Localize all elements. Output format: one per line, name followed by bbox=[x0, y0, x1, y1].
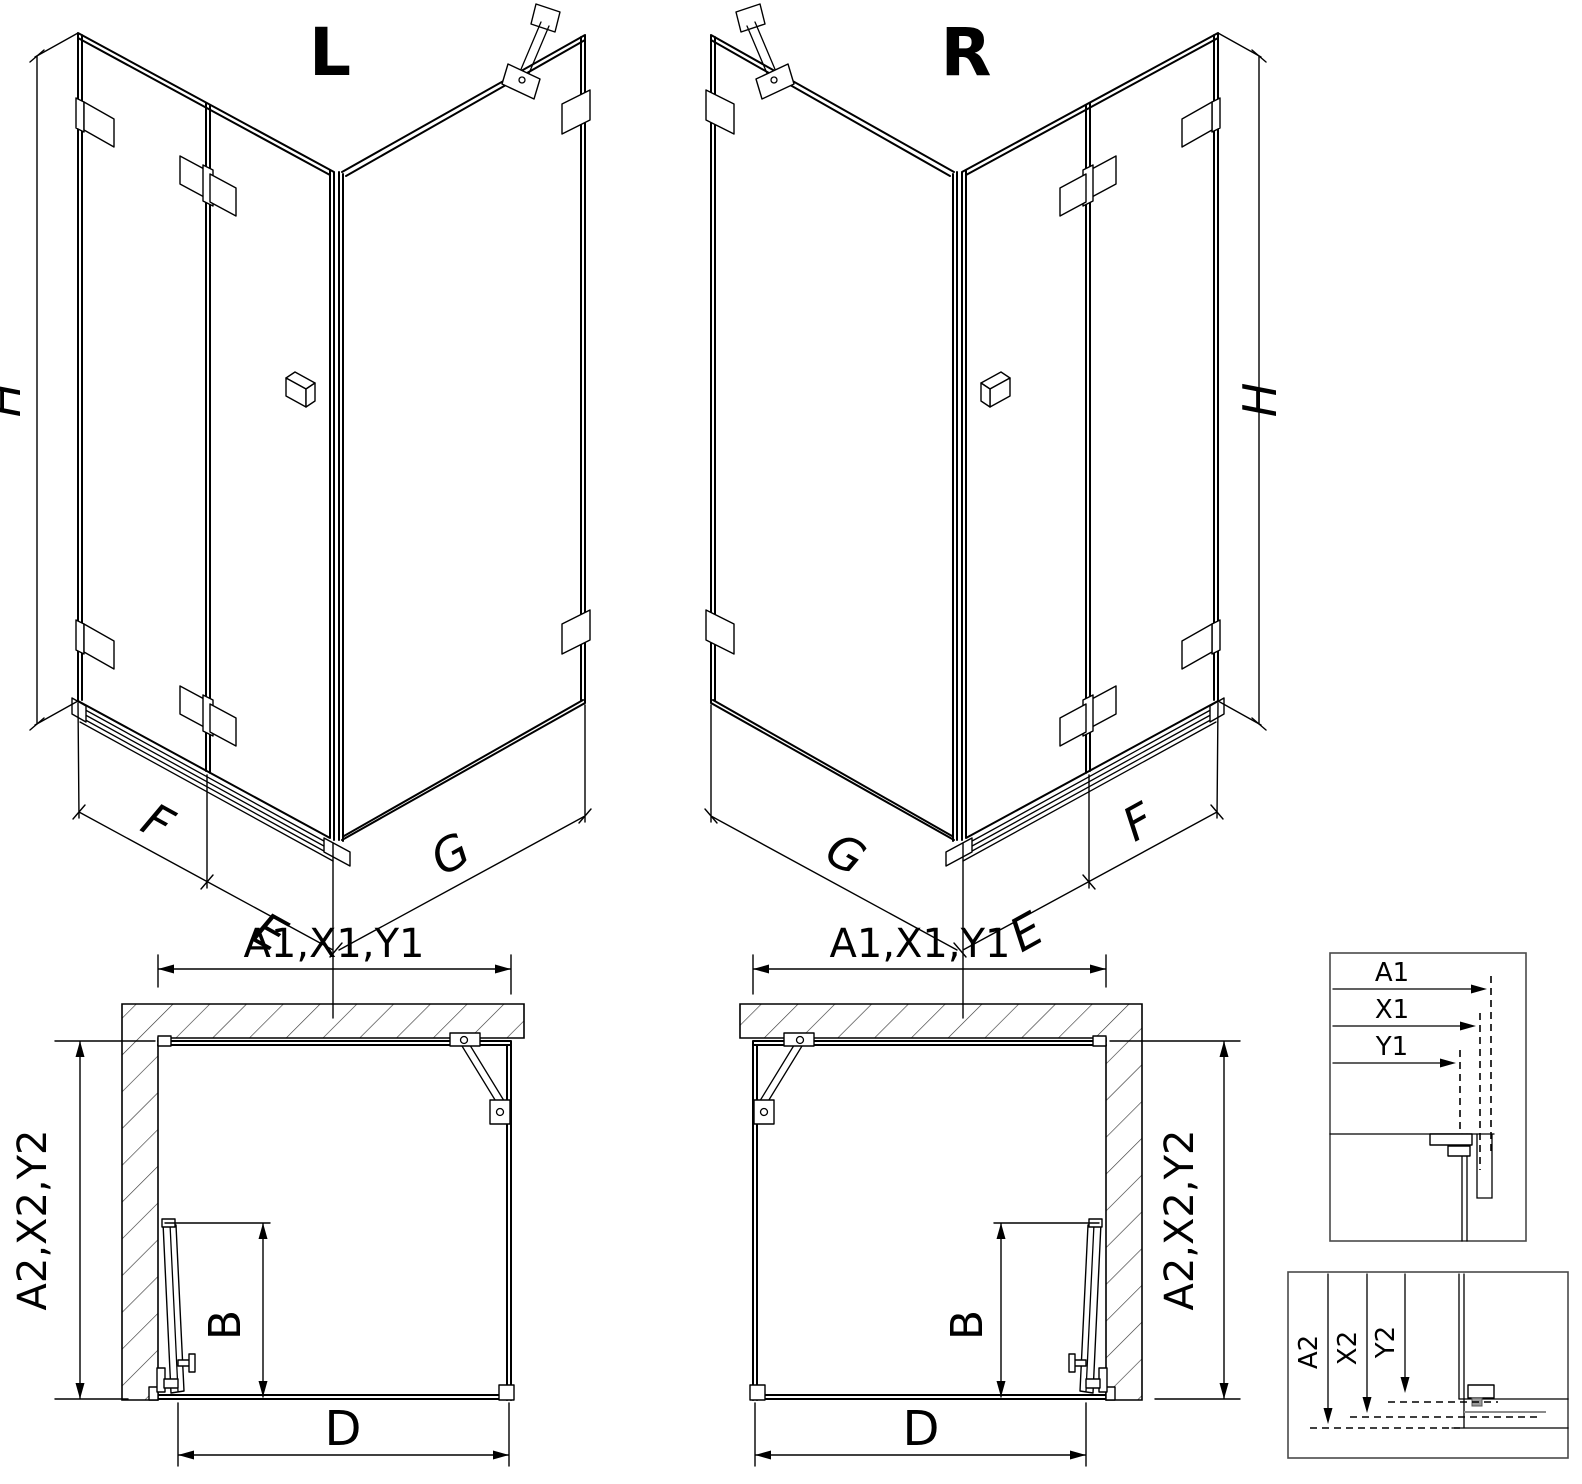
detail-box-depth-measurements: A2 X2 Y2 bbox=[1288, 1272, 1568, 1458]
variant-label-left: L bbox=[309, 14, 351, 91]
detail-label-a2: A2 bbox=[1294, 1335, 1324, 1369]
opening-label-right-plan: D bbox=[903, 1401, 940, 1457]
door-swing-label-right-plan: B bbox=[942, 1310, 993, 1340]
fixed-panel-dim-right: F bbox=[1114, 792, 1164, 852]
opening-label-left-plan: D bbox=[325, 1401, 362, 1457]
iso-right-geometry bbox=[705, 4, 1266, 1018]
detail-label-a1: A1 bbox=[1375, 958, 1409, 988]
building-wall-left-plan bbox=[122, 1004, 524, 1400]
width-dim-label-right-plan: A1,X1,Y1 bbox=[830, 921, 1011, 967]
detail-label-x1: X1 bbox=[1375, 995, 1409, 1025]
iso-left-geometry bbox=[30, 4, 591, 1018]
iso-view-left: L H F E G bbox=[0, 4, 591, 1018]
height-dim-label-right: H bbox=[1233, 383, 1287, 418]
detail-label-x2: X2 bbox=[1333, 1331, 1363, 1365]
detail-label-y1: Y1 bbox=[1375, 1032, 1408, 1062]
building-wall-right-plan bbox=[740, 1004, 1142, 1400]
detail-label-y2: Y2 bbox=[1371, 1326, 1401, 1359]
plan-view-left: A1,X1,Y1 A2,X2,Y2 B D bbox=[10, 921, 524, 1466]
variant-label-right: R bbox=[941, 14, 992, 91]
technical-drawing-canvas: L H F E G R H F E G A1,X1,Y1 A2,X2,Y2 B … bbox=[0, 0, 1582, 1484]
door-swing-label-left-plan: B bbox=[200, 1310, 251, 1340]
detail-box-width-border bbox=[1330, 953, 1526, 1241]
fixed-panel-dim-left: F bbox=[133, 792, 183, 852]
width-dim-label-left-plan: A1,X1,Y1 bbox=[244, 921, 425, 967]
side-panel-dim-right: G bbox=[817, 822, 874, 887]
shower-enclosure-diagram: L H F E G R H F E G A1,X1,Y1 A2,X2,Y2 B … bbox=[0, 0, 1582, 1484]
detail-box-depth-border bbox=[1288, 1272, 1568, 1458]
height-dim-label-left: H bbox=[0, 383, 31, 418]
side-panel-dim-left: G bbox=[422, 822, 479, 887]
plan-view-right: A1,X1,Y1 A2,X2,Y2 B D bbox=[740, 921, 1240, 1466]
detail-box-width-measurements: A1 X1 Y1 bbox=[1330, 953, 1526, 1241]
depth-dim-label-left-plan: A2,X2,Y2 bbox=[10, 1130, 56, 1311]
depth-dim-label-right-plan: A2,X2,Y2 bbox=[1157, 1130, 1203, 1311]
iso-view-right: R H F E G bbox=[705, 4, 1287, 1018]
